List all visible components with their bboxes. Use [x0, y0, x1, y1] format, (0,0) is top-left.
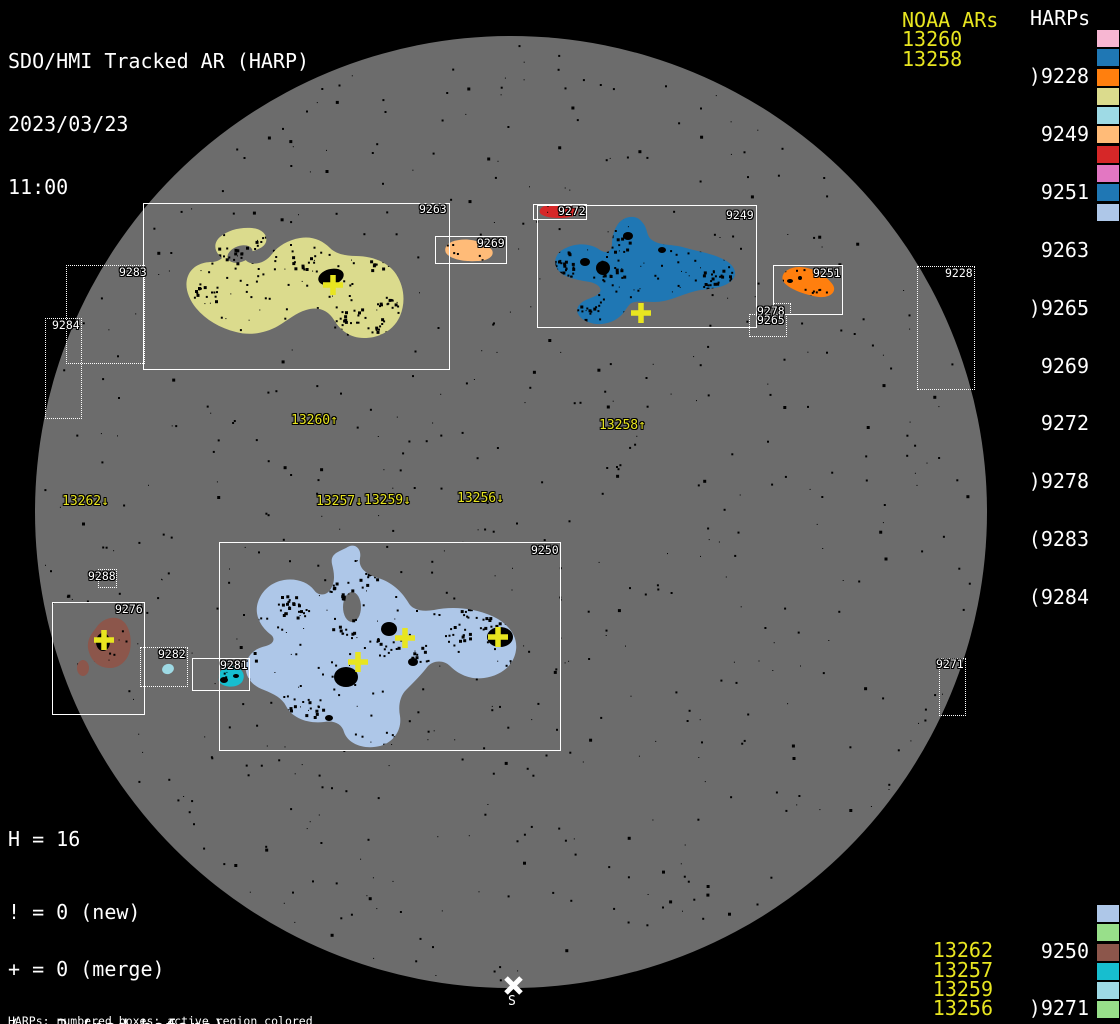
harp-box-label: 9251	[813, 268, 841, 279]
legend-line: + = 0 (merge)	[8, 960, 237, 979]
harp-color-swatch	[1097, 982, 1119, 999]
bottom-harp-swatches	[1097, 905, 1119, 1018]
solar-harp-view: 9263 9269 9272 9249 9251 9278 9265 9283 …	[0, 0, 1120, 1024]
harp-box-label: 9288	[88, 571, 116, 582]
noaa-equator-label: 13256↓	[457, 492, 504, 505]
harp-color-swatch	[1097, 165, 1119, 182]
harp-number: 9251	[1019, 183, 1089, 202]
harp-box-9276	[52, 602, 145, 715]
harp-box-9228	[917, 266, 975, 390]
harp-number: 9269	[1019, 357, 1089, 376]
page-title: SDO/HMI Tracked AR (HARP)	[8, 51, 309, 72]
harp-panel-title: HARPs	[1030, 9, 1090, 28]
harp-count: H = 16	[8, 830, 80, 849]
harp-color-swatch	[1097, 107, 1119, 124]
noaa-equator-label: 13260↑	[291, 414, 338, 427]
harp-color-swatch	[1097, 146, 1119, 163]
harp-box-label: 9250	[531, 545, 559, 556]
harp-color-swatch	[1097, 126, 1119, 143]
harp-color-swatch	[1097, 204, 1119, 221]
noaa-equator-label: 13257↓	[316, 495, 363, 508]
harp-color-swatch	[1097, 184, 1119, 201]
harp-color-swatches	[1097, 30, 1119, 221]
header: SDO/HMI Tracked AR (HARP) 2023/03/23 11:…	[8, 9, 309, 240]
harp-color-swatch	[1097, 924, 1119, 941]
noaa-equator-label: 13258↑	[599, 419, 646, 432]
harp-box-label: 9276	[115, 604, 143, 615]
harp-box-label: 9271	[936, 659, 964, 670]
harp-color-swatch	[1097, 69, 1119, 86]
south-pole-label: S	[508, 995, 516, 1008]
harp-number: (9284	[1019, 588, 1089, 607]
harp-panel-list: )9228 9249 9251 9263 )9265 9269 9272 )92…	[1019, 29, 1089, 647]
harp-box-9249	[537, 205, 757, 328]
harp-number: 9272	[1019, 414, 1089, 433]
harp-box-label: 9284	[52, 320, 80, 331]
harp-box-label: 9281	[220, 660, 248, 671]
harp-box-label: 9282	[158, 649, 186, 660]
harp-number: )9228	[1019, 67, 1089, 86]
harp-box-label: 9283	[119, 267, 147, 278]
harp-number: )9278	[1019, 472, 1089, 491]
noaa-ar-number: 13256	[930, 999, 993, 1018]
harp-color-swatch	[1097, 49, 1119, 66]
harp-box-9284	[45, 318, 82, 419]
legend-line: ! = 0 (new)	[8, 903, 237, 922]
harp-color-swatch	[1097, 905, 1119, 922]
harp-box-label: 9263	[419, 204, 447, 215]
noaa-equator-label: 13262↓	[62, 495, 109, 508]
harp-color-swatch	[1097, 963, 1119, 980]
harp-box-9250	[219, 542, 561, 751]
harp-box-label: 9265	[757, 315, 785, 326]
bottom-harp-list: 9250 )9271 9276 9281 ~9282 (9288	[1019, 903, 1089, 1024]
harp-color-swatch	[1097, 944, 1119, 961]
harp-color-swatch	[1097, 1001, 1119, 1018]
noaa-ar-number: 13258	[902, 50, 998, 69]
harp-box-label: 9272	[558, 206, 586, 217]
harp-number: 9249	[1019, 125, 1089, 144]
harp-box-label: 9269	[477, 238, 505, 249]
harp-number: 9263	[1019, 241, 1089, 260]
noaa-equator-label: 13259↓	[364, 494, 411, 507]
harp-number: 9250	[1019, 942, 1089, 961]
footnote-harps: HARPs: numbered boxes; active region col…	[8, 1015, 410, 1024]
harp-number: )9271	[1019, 999, 1089, 1018]
harp-number: )9265	[1019, 299, 1089, 318]
harp-color-swatch	[1097, 30, 1119, 47]
bottom-noaa-list: 13262 13257 13259 13256	[930, 941, 993, 1018]
harp-box-label: 9228	[945, 268, 973, 279]
harp-box-label: 9249	[726, 210, 754, 221]
footnotes: HARPs: numbered boxes; active region col…	[8, 991, 410, 1024]
harp-color-swatch	[1097, 88, 1119, 105]
noaa-panel: NOAA ARs 13260 13258	[902, 11, 998, 69]
observation-date: 2023/03/23	[8, 114, 309, 135]
observation-time: 11:00	[8, 177, 309, 198]
harp-number: (9283	[1019, 530, 1089, 549]
